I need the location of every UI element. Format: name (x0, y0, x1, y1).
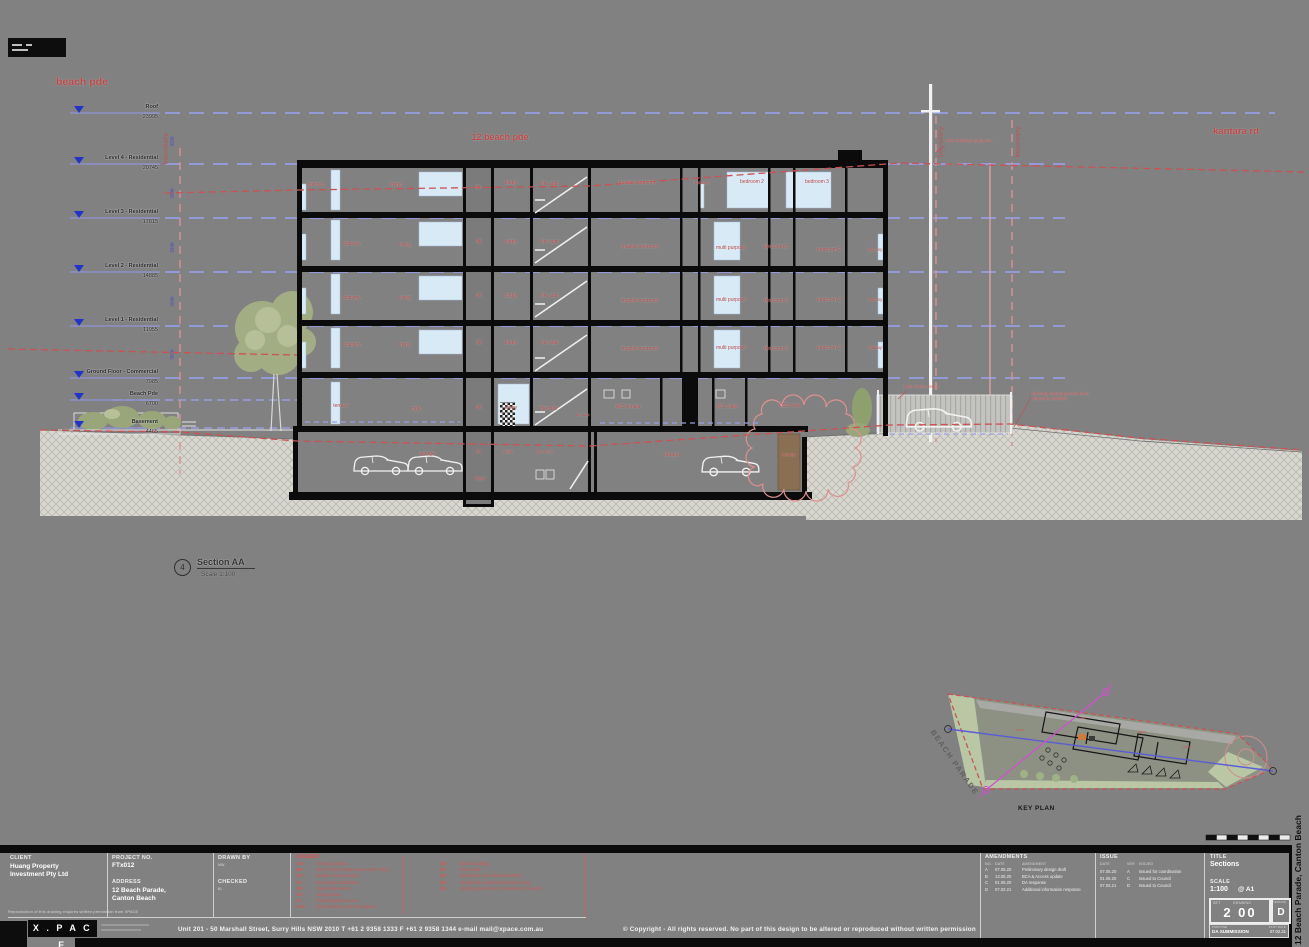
issue-row-cell: Issued to Council (1139, 882, 1200, 889)
separator (107, 853, 108, 917)
amendment-row-cell: Additional information response (1022, 887, 1090, 894)
ground-hatch (40, 424, 1302, 520)
scale-label: SCALE (1210, 879, 1230, 885)
version-value: D (1273, 907, 1289, 918)
issue-row-cell: Issued for coordination (1139, 868, 1200, 875)
xpace-logo: X . P A C E (28, 920, 97, 937)
right-bush (846, 388, 872, 437)
separator (8, 917, 586, 918)
signature-line (101, 924, 149, 926)
scale-paper: @ A1 (1238, 886, 1254, 894)
title-value: Sections (1210, 861, 1239, 869)
drawing-number: 2 00 (1211, 905, 1269, 920)
sheet-side-title: 12 Beach Parade, Canton Beach (1293, 770, 1303, 945)
legend-row: SDSliding glass doors (Aluminium Framed) (440, 886, 580, 892)
issue-label: ISSUE (1100, 854, 1118, 860)
drawn-by-label: DRAWN BY (218, 855, 250, 861)
checked-value: BL (218, 887, 223, 891)
issue-row-cell: Issued to Council (1139, 875, 1200, 882)
amendments-label: AMENDMENTS (985, 854, 1027, 860)
purpose-box: PURPOSE DA SUBMISSION PLOT DATE 07.02.21 (1209, 924, 1289, 938)
plot-date-value: 07.02.21 (1270, 929, 1286, 934)
separator (585, 853, 586, 917)
issue-table: DATEVERISSUED07.05.20AIssued for coordin… (1100, 862, 1200, 889)
issue-row-cell: 01.06.20 (1100, 875, 1127, 882)
version-label: VERSION (1273, 901, 1286, 904)
purpose-value: DA SUBMISSION (1212, 929, 1249, 934)
datum-marker-lines (70, 113, 160, 428)
issue-row-cell: A (1127, 868, 1139, 875)
client-label: CLIENT (10, 855, 32, 861)
checked-label: CHECKED (218, 879, 247, 885)
storage-door (778, 434, 800, 490)
key-plan (945, 684, 1277, 798)
scale-bar (1206, 835, 1290, 840)
separator (1095, 853, 1096, 938)
titleblock-top-bar (0, 845, 1292, 853)
amendment-row-cell: 07.02.21 (995, 887, 1022, 894)
legend-column-1: AWAwning windowBBBreeze block (style and… (296, 861, 401, 911)
issue-row-cell: 07.05.20 (1100, 868, 1127, 875)
sheet-bottom-bar (75, 938, 1292, 947)
issue-row-cell: D (1127, 882, 1139, 889)
copyright-note: © Copyright - All rights reserved. No pa… (623, 926, 976, 933)
drawn-by-value: MW (218, 863, 225, 867)
separator (1204, 853, 1205, 938)
amendments-table: NO.DATEAMENDMENTA07.05.20Preliminary des… (985, 862, 1090, 893)
entry-mat (500, 402, 515, 426)
amendment-row-cell: D (985, 887, 995, 894)
legend-label: LEGEND (296, 854, 319, 860)
address-label: ADDRESS (112, 879, 141, 885)
planter-bushes (58, 406, 295, 434)
stairs (535, 177, 588, 489)
project-no-label: PROJECT NO. (112, 855, 153, 861)
section-drawing (0, 0, 1309, 947)
separator (290, 853, 291, 917)
version-box: VERSION D (1271, 898, 1291, 924)
separator (980, 853, 981, 938)
issue-row-cell: C (1127, 875, 1139, 882)
title-label: TITLE (1210, 854, 1227, 860)
client-line1: Huang Property (10, 863, 105, 871)
legend-column-2: MCMetal claddingPDPivot doorRERendered a… (440, 861, 580, 892)
address-value: 12 Beach Parade, Canton Beach (112, 887, 207, 903)
red-dashed-lines (8, 163, 1308, 450)
project-no-value: FTx012 (112, 862, 134, 870)
reproduction-note: Reproduction of this drawing requires wr… (8, 910, 138, 914)
legend-row: LVGFixed blades over fixed glass (296, 904, 401, 910)
drawing-sheet: beach pde 12 beach pde kantara rd 13m bu… (0, 0, 1309, 947)
address-line2: Canton Beach (112, 895, 207, 903)
client-value: Huang Property Investment Pty Ltd (10, 863, 105, 879)
separator (403, 856, 404, 914)
address-line1: 12 Beach Parade, (112, 887, 207, 895)
client-line2: Investment Pty Ltd (10, 871, 105, 879)
leader-lines (898, 146, 1031, 427)
power-pole-icon (921, 84, 940, 442)
scale-value: 1:100 (1210, 886, 1228, 894)
studio-address: Unit 201 - 50 Marshall Street, Surry Hil… (178, 926, 543, 933)
signature-line (101, 929, 141, 931)
building-section (289, 150, 888, 507)
issue-row-cell: 07.02.21 (1100, 882, 1127, 889)
separator (213, 853, 214, 917)
drawing-number-box: SET DRAWING 2 00 (1209, 898, 1271, 924)
titleblock-right-edge (1289, 845, 1292, 947)
